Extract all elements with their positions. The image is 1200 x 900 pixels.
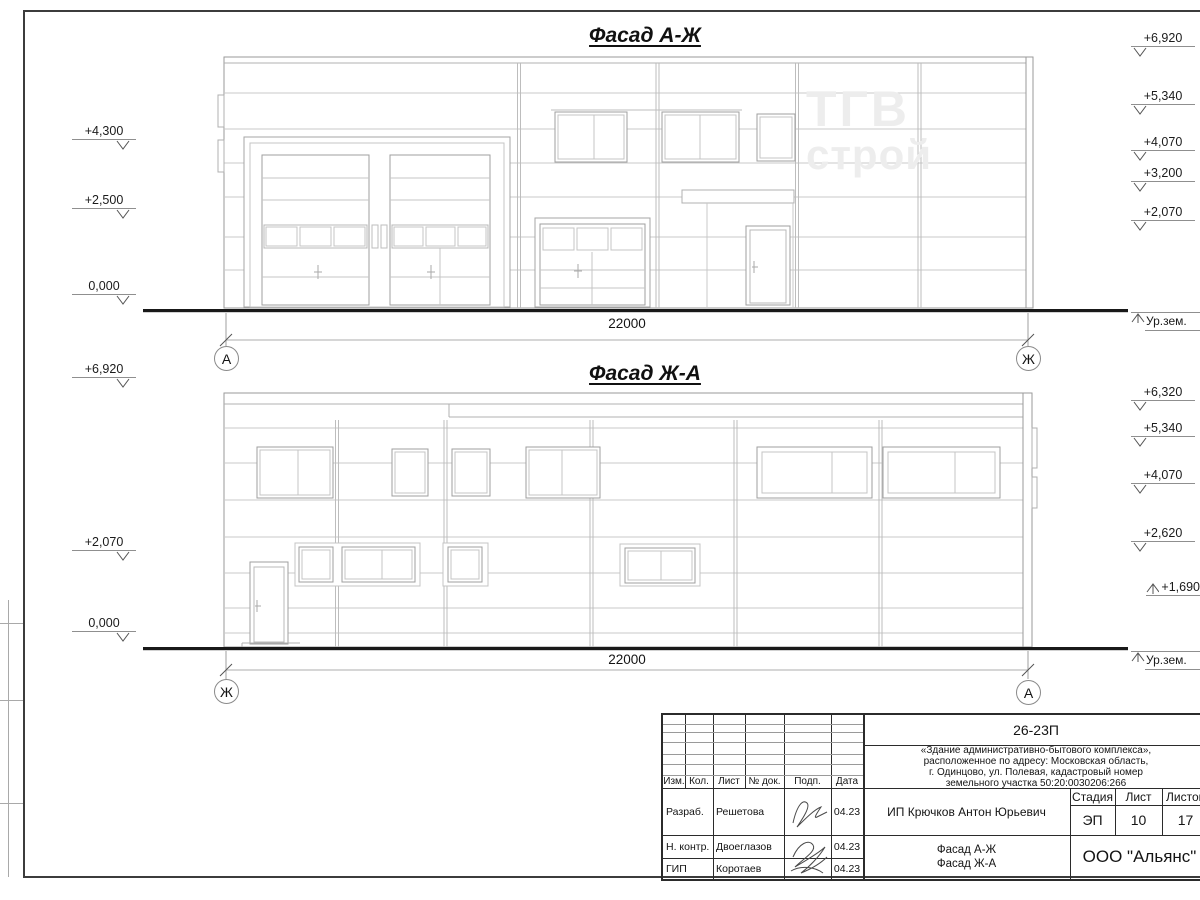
role-label: Разраб. <box>663 788 713 835</box>
ground-level-mark: Ур.зем. <box>1131 651 1200 670</box>
side-stamp-line <box>0 623 23 624</box>
elevation-mark: +5,340 <box>1131 89 1195 105</box>
col-header: Дата <box>831 775 863 788</box>
elevation-tick-icon <box>116 295 130 306</box>
drawing-sheet: Фасад А-Ж <box>0 0 1200 900</box>
elevation-value: 0,000 <box>72 616 136 632</box>
elevation-mark: +3,200 <box>1131 166 1195 182</box>
watermark-line2: строй <box>806 134 932 176</box>
facade2-title-text: Фасад Ж-А <box>589 362 701 385</box>
sheet-value: 10 <box>1115 805 1162 835</box>
elevation-value: +4,070 <box>1131 135 1195 151</box>
elevation-mark: +2,500 <box>72 193 136 209</box>
col-header: Кол. <box>685 775 713 788</box>
role-label: ГИП <box>663 858 713 879</box>
date-value: 04.23 <box>831 788 863 835</box>
dimension-text: 22000 <box>542 652 712 667</box>
ground-line <box>143 309 1128 312</box>
garage-bay <box>244 137 510 307</box>
window <box>883 447 1000 498</box>
side-stamp-line <box>0 700 23 701</box>
elevation-tick-icon <box>116 632 130 643</box>
ground-level-mark: Ур.зем. <box>1131 312 1200 331</box>
elevation-mark: +2,070 <box>72 535 136 551</box>
elevation-value: +2,620 <box>1131 526 1195 542</box>
elevation-value: 0,000 <box>72 279 136 295</box>
signature-scribble <box>787 793 831 833</box>
elevation-tick-icon <box>1133 437 1147 448</box>
signature-scribble <box>785 837 831 879</box>
elevation-value: +2,070 <box>72 535 136 551</box>
ground-tick-icon <box>1131 313 1145 323</box>
side-stamp-line <box>8 600 9 877</box>
elevation-value: +6,320 <box>1131 385 1195 401</box>
drawing-title: Фасад А-Ж Фасад Ж-А <box>863 835 1070 879</box>
window <box>392 449 428 496</box>
doc-number: 26-23П <box>863 715 1200 745</box>
elevation-value: +3,200 <box>1131 166 1195 182</box>
sheets-label: Листов <box>1162 788 1200 805</box>
ground-tick-icon <box>1146 582 1159 594</box>
axis-bubble: А <box>1016 680 1041 705</box>
elevation-mark: +6,920 <box>72 362 136 378</box>
elevation-tick-icon <box>1133 182 1147 193</box>
ground-tick-icon <box>1131 652 1145 662</box>
sheets-value: 17 <box>1162 805 1200 835</box>
company-name: ООО "Альянс" <box>1070 835 1200 879</box>
elevation-value: +2,500 <box>72 193 136 209</box>
window <box>526 447 600 498</box>
elevation-tick-icon <box>1133 47 1147 58</box>
axis-letter: А <box>1024 685 1033 701</box>
elevation-mark: +2,620 <box>1131 526 1195 542</box>
window <box>295 543 420 586</box>
watermark-line1: ТГВ <box>806 84 932 134</box>
person-name: Двоеглазов <box>713 835 784 858</box>
axis-letter: Ж <box>220 684 233 700</box>
garage-door <box>262 155 369 305</box>
elevation-tick-icon <box>1133 105 1147 116</box>
elevation-value: +4,300 <box>72 124 136 140</box>
col-header: Лист <box>713 775 745 788</box>
watermark-logo: ТГВ строй <box>806 84 932 176</box>
elevation-mark: 0,000 <box>72 616 136 632</box>
elevation-tick-icon <box>116 551 130 562</box>
facade2-title: Фасад Ж-А <box>140 362 1150 386</box>
facade2-drawing <box>140 385 1150 685</box>
frame-top <box>23 10 1200 12</box>
window <box>555 112 627 162</box>
sheet-label: Лист <box>1115 788 1162 805</box>
glazed-garage-door <box>535 218 650 307</box>
elevation-value: +1,690 <box>1159 580 1200 594</box>
project-description: «Здание административно-бытового комплек… <box>863 745 1200 788</box>
ground-level-label: Ур.зем. <box>1145 313 1200 331</box>
stage-label: Стадия <box>1070 788 1115 805</box>
elevation-value: +2,070 <box>1131 205 1195 221</box>
person-name: Коротаев <box>713 858 784 879</box>
dimension-text: 22000 <box>542 316 712 331</box>
window <box>257 447 333 498</box>
ground-line <box>143 647 1128 650</box>
window <box>443 543 488 586</box>
elevation-mark: +4,070 <box>1131 468 1195 484</box>
elevation-mark: +5,340 <box>1131 421 1195 437</box>
elevation-tick-icon <box>116 209 130 220</box>
frame-left <box>23 10 25 878</box>
axis-bubble: Ж <box>214 679 239 704</box>
elevation-mark: +4,300 <box>72 124 136 140</box>
client-name: ИП Крючков Антон Юрьевич <box>863 788 1070 835</box>
elevation-mark: +6,920 <box>1131 31 1195 47</box>
elevation-tick-icon <box>1133 542 1147 553</box>
window <box>620 544 700 586</box>
elevation-tick-icon <box>116 378 130 389</box>
person-name: Решетова <box>713 788 784 835</box>
window <box>452 449 490 496</box>
window <box>757 447 872 498</box>
role-label: Н. контр. <box>663 835 713 858</box>
elevation-tick-icon <box>1133 401 1147 412</box>
elevation-value: +5,340 <box>1131 421 1195 437</box>
elevation-value: +5,340 <box>1131 89 1195 105</box>
elevation-mark: 0,000 <box>72 279 136 295</box>
elevation-value: +4,070 <box>1131 468 1195 484</box>
window <box>757 114 795 161</box>
window <box>662 112 739 162</box>
elevation-tick-icon <box>1133 151 1147 162</box>
ground-level-label: Ур.зем. <box>1145 652 1200 670</box>
corner-column <box>1026 57 1033 308</box>
elevation-tick-icon <box>116 140 130 151</box>
stage-value: ЭП <box>1070 805 1115 835</box>
corner-column <box>1023 393 1032 647</box>
elevation-mark: +2,070 <box>1131 205 1195 221</box>
date-value: 04.23 <box>831 858 863 879</box>
elevation-tick-icon <box>1133 484 1147 495</box>
elevation-mark: +6,320 <box>1131 385 1195 401</box>
col-header: № док. <box>745 775 784 788</box>
elevation-mark: +4,070 <box>1131 135 1195 151</box>
elevation-value: +6,920 <box>72 362 136 378</box>
side-stamp-line <box>0 803 23 804</box>
elevation-tick-icon <box>1133 221 1147 232</box>
facade1-title-text: Фасад А-Ж <box>589 24 701 47</box>
col-header: Изм. <box>663 775 685 788</box>
date-value: 04.23 <box>831 835 863 858</box>
col-header: Подп. <box>784 775 831 788</box>
title-block: Изм. Кол. Лист № док. Подп. Дата Разраб.… <box>661 713 1200 881</box>
garage-door <box>390 155 490 305</box>
elevation-mark: +1,690 <box>1146 580 1200 596</box>
elevation-value: +6,920 <box>1131 31 1195 47</box>
